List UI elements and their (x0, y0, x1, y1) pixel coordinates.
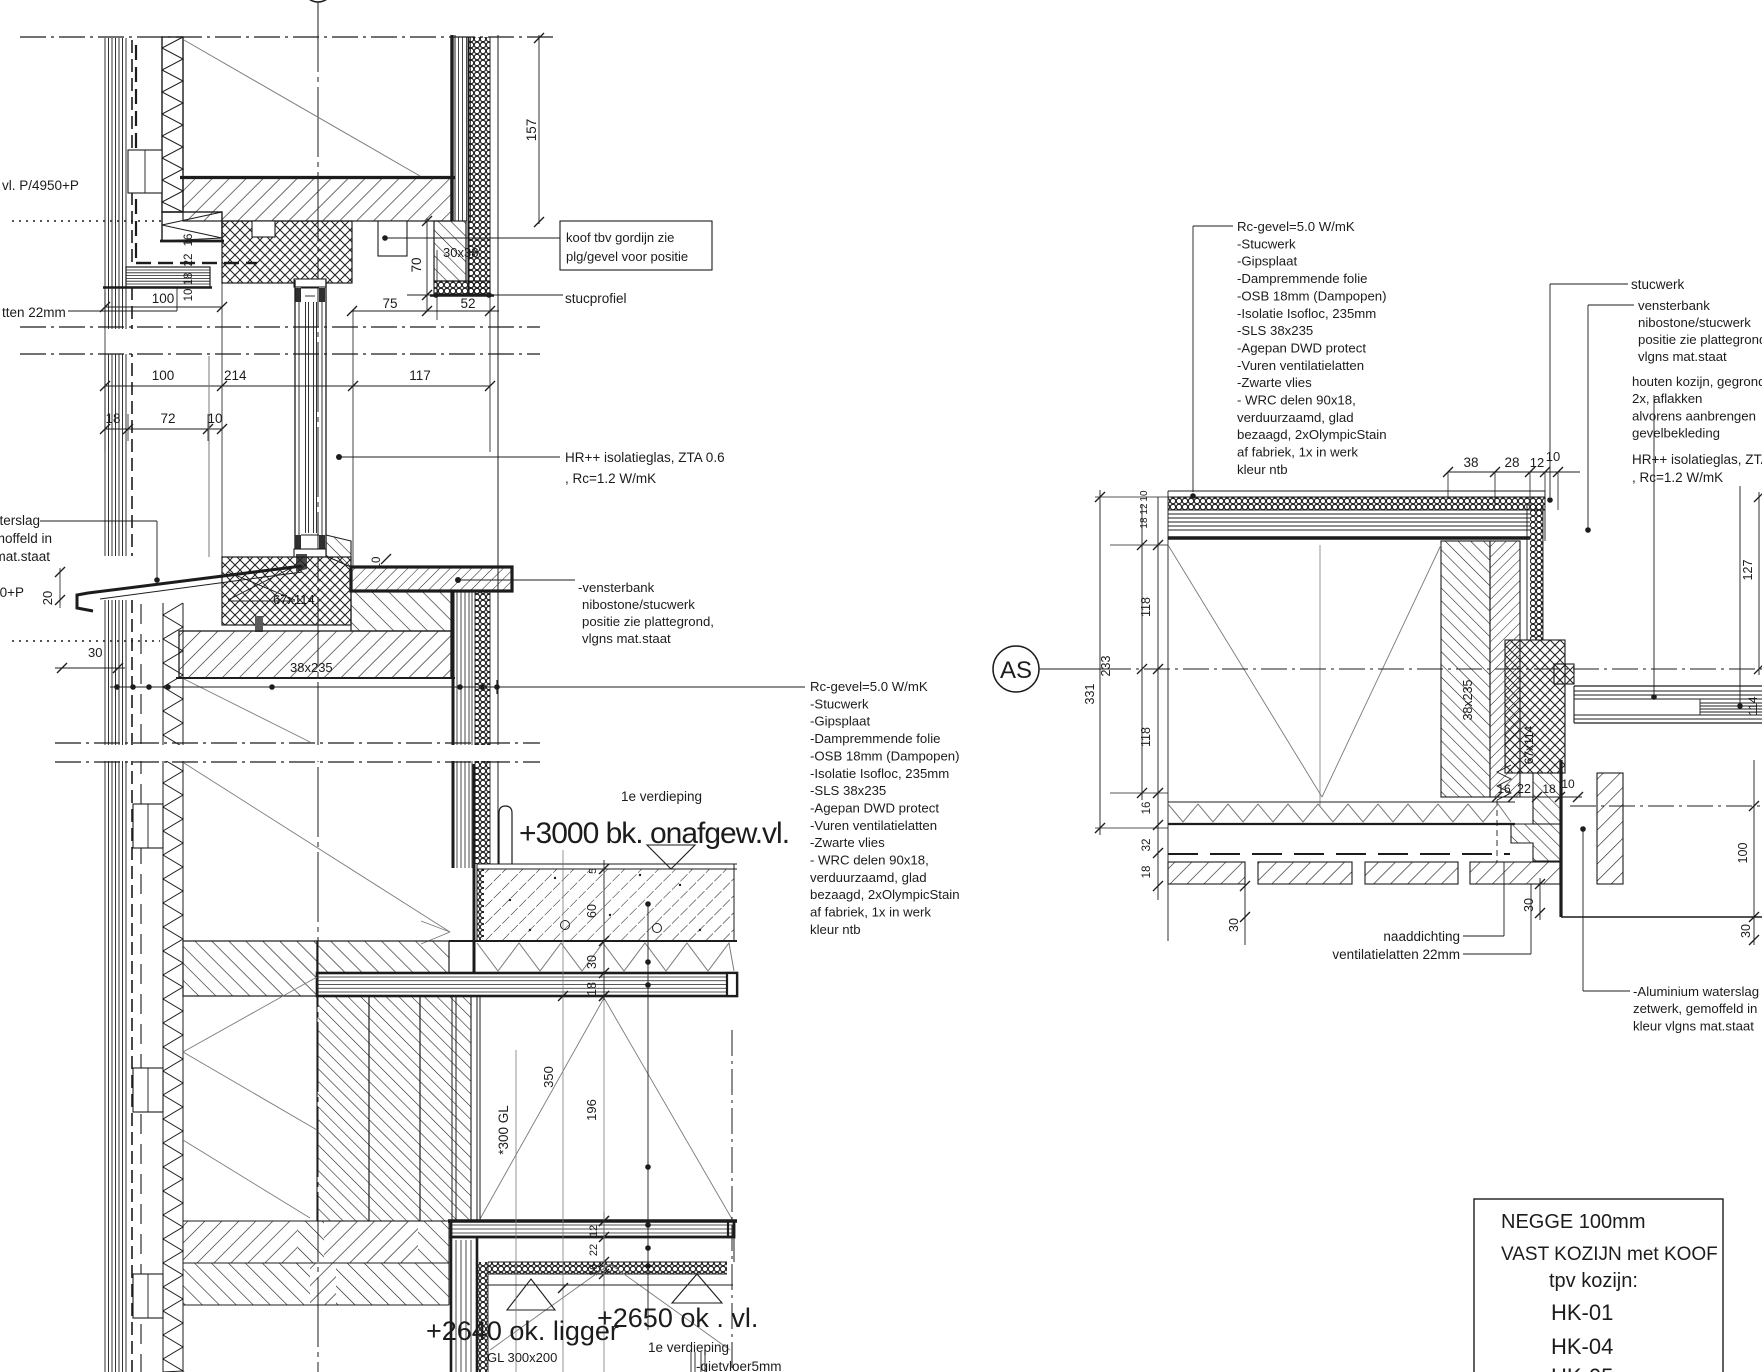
svg-text:stucwerk: stucwerk (1631, 277, 1685, 292)
svg-text:-Isolatie Isofloc, 235mm: -Isolatie Isofloc, 235mm (810, 766, 949, 781)
svg-text:-SLS 38x235: -SLS 38x235 (810, 783, 886, 798)
svg-text:-Vuren ventilatielatten: -Vuren ventilatielatten (1237, 358, 1364, 373)
svg-text:-Zwarte vlies: -Zwarte vlies (810, 835, 885, 850)
svg-text:331: 331 (1083, 684, 1097, 705)
svg-text:-Dampremmende folie: -Dampremmende folie (810, 731, 940, 746)
svg-text:214: 214 (224, 368, 247, 383)
svg-text:30: 30 (88, 645, 102, 660)
svg-text:22: 22 (1517, 782, 1531, 796)
svg-text:nibostone/stucwerk: nibostone/stucwerk (582, 597, 695, 612)
svg-text:-Zwarte vlies: -Zwarte vlies (1237, 375, 1312, 390)
svg-text:30: 30 (1739, 924, 1753, 938)
svg-text:AS: AS (1000, 657, 1032, 684)
svg-text:18: 18 (1542, 782, 1556, 796)
svg-text:koof tbv gordijn zie: koof tbv gordijn zie (566, 230, 674, 245)
svg-text:af fabriek, 1x in werk: af fabriek, 1x in werk (810, 905, 931, 920)
svg-text:verduurzaamd, glad: verduurzaamd, glad (810, 870, 927, 885)
svg-text:gevelbekleding: gevelbekleding (1632, 426, 1720, 441)
svg-text:-Agepan DWD protect: -Agepan DWD protect (1237, 340, 1366, 355)
svg-text:-Aluminium waterslag: -Aluminium waterslag (1633, 984, 1759, 999)
svg-text:positie zie plattegrond,: positie zie plattegrond, (1638, 332, 1762, 347)
svg-text:114: 114 (1746, 696, 1760, 715)
svg-text:10: 10 (1561, 777, 1575, 791)
svg-text:plg/gevel voor positie: plg/gevel voor positie (566, 249, 688, 264)
svg-text:HR++ isolatieglas, ZTA 0.6: HR++ isolatieglas, ZTA 0.6 (565, 450, 725, 465)
svg-text:18: 18 (585, 982, 599, 996)
svg-text:100: 100 (1736, 843, 1750, 864)
svg-text:67x114: 67x114 (1522, 725, 1536, 764)
svg-text:100: 100 (152, 291, 175, 306)
svg-text:196: 196 (584, 1099, 599, 1121)
svg-text:12: 12 (588, 1225, 600, 1237)
svg-text:ventilatielatten 22mm: ventilatielatten 22mm (1332, 947, 1460, 962)
svg-text:-vensterbank: -vensterbank (578, 580, 655, 595)
svg-text:tten 22mm: tten 22mm (2, 305, 66, 320)
svg-text:38: 38 (1463, 455, 1478, 470)
svg-text:vlgns mat.staat: vlgns mat.staat (1638, 349, 1727, 364)
svg-text:60: 60 (585, 904, 599, 918)
svg-text:- WRC delen 90x18,: - WRC delen 90x18, (1237, 393, 1356, 408)
svg-text:-Stucwerk: -Stucwerk (810, 696, 869, 711)
svg-text:-Gipsplaat: -Gipsplaat (1237, 254, 1297, 269)
svg-text:Rc-gevel=5.0 W/mK: Rc-gevel=5.0 W/mK (810, 679, 928, 694)
svg-text:30: 30 (1522, 898, 1536, 912)
svg-text:30: 30 (585, 955, 599, 969)
svg-text:5: 5 (587, 868, 599, 874)
svg-text:32: 32 (1141, 839, 1153, 852)
svg-text:157: 157 (524, 119, 539, 142)
svg-text:HR++ isolatieglas, ZTA: HR++ isolatieglas, ZTA (1632, 452, 1762, 467)
svg-text:, Rc=1.2 W/mK: , Rc=1.2 W/mK (565, 471, 656, 486)
svg-text:-SLS 38x235: -SLS 38x235 (1237, 323, 1313, 338)
svg-text:18: 18 (1139, 517, 1150, 529)
svg-text:1e verdieping: 1e verdieping (648, 1340, 729, 1355)
svg-text:GL 300x200: GL 300x200 (487, 1350, 557, 1365)
svg-text:16: 16 (588, 1264, 600, 1276)
svg-text:70: 70 (409, 257, 424, 272)
svg-text:1e verdieping: 1e verdieping (621, 789, 702, 804)
svg-text:HK-04: HK-04 (1551, 1334, 1613, 1359)
svg-text:10: 10 (1546, 449, 1560, 464)
svg-text:kleur ntb: kleur ntb (810, 922, 861, 937)
svg-text:VAST KOZIJN met KOOF: VAST KOZIJN met KOOF (1501, 1244, 1718, 1265)
svg-text:, Rc=1.2 W/mK: , Rc=1.2 W/mK (1632, 470, 1723, 485)
svg-text:72: 72 (160, 411, 175, 426)
svg-text:tpv kozijn:: tpv kozijn: (1549, 1270, 1638, 1292)
svg-text:10: 10 (207, 411, 222, 426)
svg-text:-OSB 18mm (Dampopen): -OSB 18mm (Dampopen) (810, 748, 960, 763)
svg-text:positie zie plattegrond,: positie zie plattegrond, (582, 614, 714, 629)
svg-text:kleur ntb: kleur ntb (1237, 462, 1288, 477)
svg-text:10: 10 (1139, 490, 1150, 502)
svg-text:HK-05: HK-05 (1551, 1364, 1613, 1372)
svg-text:12: 12 (1530, 455, 1544, 470)
svg-text:350: 350 (541, 1066, 556, 1088)
svg-text:233: 233 (1099, 656, 1113, 677)
svg-text:2x, aflakken: 2x, aflakken (1632, 391, 1702, 406)
svg-text:-Dampremmende folie: -Dampremmende folie (1237, 271, 1367, 286)
svg-text:NEGGE 100mm: NEGGE 100mm (1501, 1211, 1645, 1233)
svg-text:stucprofiel: stucprofiel (565, 291, 627, 306)
svg-text:38x235: 38x235 (290, 660, 333, 675)
svg-text:bezaagd, 2xOlympicStain: bezaagd, 2xOlympicStain (810, 887, 960, 902)
svg-text:*300 GL: *300 GL (496, 1105, 511, 1155)
svg-text:-Stucwerk: -Stucwerk (1237, 236, 1296, 251)
svg-text:naaddichting: naaddichting (1383, 929, 1460, 944)
svg-text:kleur vlgns mat.staat: kleur vlgns mat.staat (1633, 1018, 1754, 1033)
svg-text:127: 127 (1741, 560, 1755, 581)
svg-text:18: 18 (105, 411, 120, 426)
svg-text:HK-01: HK-01 (1551, 1300, 1613, 1325)
svg-text:zetwerk, gemoffeld in: zetwerk, gemoffeld in (1633, 1001, 1757, 1016)
svg-text:bezaagd, 2xOlympicStain: bezaagd, 2xOlympicStain (1237, 427, 1387, 442)
svg-text:38x235: 38x235 (1461, 679, 1475, 720)
svg-text:-Agepan DWD protect: -Agepan DWD protect (810, 800, 939, 815)
svg-text:75: 75 (382, 296, 397, 311)
svg-text:-Gipsplaat: -Gipsplaat (810, 714, 870, 729)
svg-text:- WRC delen 90x18,: - WRC delen 90x18, (810, 853, 929, 868)
svg-text:vlgns mat.staat: vlgns mat.staat (582, 631, 671, 646)
svg-text:kleur vlgns mat.staat: kleur vlgns mat.staat (0, 549, 50, 564)
svg-text:30x38: 30x38 (443, 245, 478, 260)
svg-text:118: 118 (1139, 727, 1153, 747)
svg-text:verduurzaamd, glad: verduurzaamd, glad (1237, 410, 1354, 425)
svg-text:30: 30 (1227, 918, 1241, 932)
svg-text:-Aluminium waterslag: -Aluminium waterslag (0, 513, 40, 528)
svg-text:18: 18 (1141, 866, 1153, 879)
svg-text:+2650 ok . vl.: +2650 ok . vl. (597, 1303, 758, 1333)
svg-text:10: 10 (183, 289, 195, 302)
svg-text:16: 16 (1497, 782, 1511, 796)
svg-text:118: 118 (1139, 597, 1153, 617)
svg-text:+2640 ok. ligger: +2640 ok. ligger (426, 1316, 619, 1346)
svg-text:-OSB 18mm (Dampopen): -OSB 18mm (Dampopen) (1237, 288, 1387, 303)
svg-text:117: 117 (409, 368, 431, 383)
svg-text:-Isolatie Isofloc, 235mm: -Isolatie Isofloc, 235mm (1237, 306, 1376, 321)
svg-text:af fabriek, 1x in werk: af fabriek, 1x in werk (1237, 445, 1358, 460)
svg-text:-Vuren ventilatielatten: -Vuren ventilatielatten (810, 818, 937, 833)
svg-text:nibostone/stucwerk: nibostone/stucwerk (1638, 315, 1751, 330)
svg-text:Rc-gevel=5.0 W/mK: Rc-gevel=5.0 W/mK (1237, 219, 1355, 234)
svg-text:22: 22 (183, 254, 195, 267)
svg-text:100: 100 (152, 368, 175, 383)
svg-text:16: 16 (183, 234, 195, 247)
svg-text:-gietvloer5mm: -gietvloer5mm (696, 1359, 782, 1372)
svg-text:vensterbank: vensterbank (1638, 298, 1710, 313)
svg-text:vl. P/4950+P: vl. P/4950+P (2, 178, 79, 193)
svg-text:52: 52 (460, 296, 475, 311)
svg-text:20: 20 (40, 591, 55, 605)
svg-text:28: 28 (1504, 455, 1519, 470)
svg-text:houten kozijn, gegrond: houten kozijn, gegrond (1632, 374, 1762, 389)
svg-text:zetwerk, gemoffeld in: zetwerk, gemoffeld in (0, 531, 52, 546)
svg-text:67x114: 67x114 (273, 592, 315, 607)
svg-text:vl. -60+P: vl. -60+P (0, 585, 24, 600)
svg-text:16: 16 (1141, 802, 1153, 815)
svg-text:18: 18 (183, 273, 195, 286)
svg-text:12: 12 (1139, 503, 1150, 515)
svg-text:22: 22 (588, 1244, 600, 1256)
svg-text:alvorens aanbrengen: alvorens aanbrengen (1632, 408, 1756, 423)
